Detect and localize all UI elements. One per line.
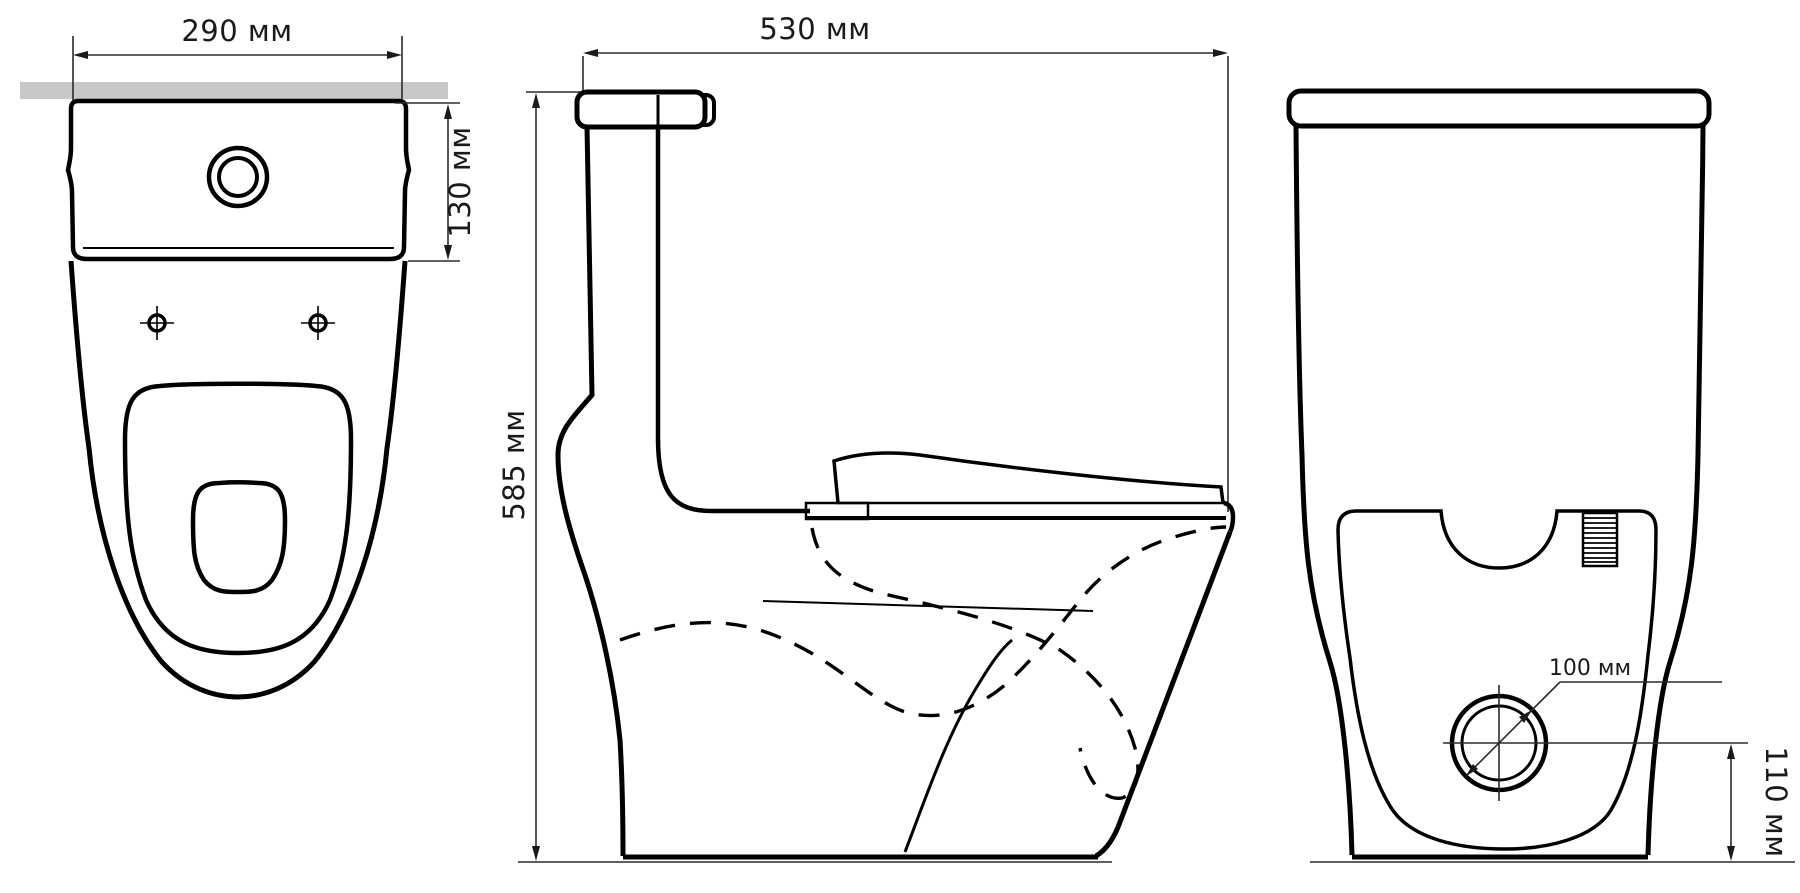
tank-front-face (658, 127, 810, 511)
body-outline-front-right (1648, 126, 1703, 855)
arrow-up-icon (532, 93, 540, 108)
dim-outlet-diameter-label: 100 мм (1549, 656, 1631, 681)
arrow-down-icon (1727, 846, 1735, 861)
wall-bar (20, 82, 448, 99)
body-outline-front-left (1296, 126, 1352, 855)
arrow-left-icon (583, 49, 598, 57)
bowl-outline-top (71, 261, 405, 697)
trapway-dashed-lower (620, 527, 1226, 716)
dim-side-height-label: 585 мм (497, 409, 531, 520)
arrow-down-icon (532, 846, 540, 861)
water-area-outline (193, 482, 285, 592)
outlet-centerlines (1443, 682, 1748, 801)
flush-button-inner (219, 158, 257, 196)
dim-top-width-label: 290 мм (181, 14, 292, 48)
dim-outlet-height-label: 110 мм (1759, 746, 1793, 857)
mount-hole-right (301, 306, 335, 340)
front-view (1289, 91, 1795, 862)
dim-side-depth-label: 530 мм (759, 12, 870, 46)
tank-outline-top (68, 101, 409, 259)
trapway-dashed-upper (812, 528, 1138, 798)
top-view (20, 36, 460, 697)
arrow-down-icon (444, 245, 452, 260)
drawing-canvas: 290 мм 130 мм 530 мм 585 мм 100 мм 110 м… (0, 0, 1800, 893)
toilet-dimension-drawing: 290 мм 130 мм 530 мм 585 мм 100 мм 110 м… (0, 0, 1800, 893)
dim-tank-depth-label: 130 мм (443, 126, 477, 237)
arrow-up-icon (1727, 744, 1735, 759)
arrow-right-icon (1213, 49, 1228, 57)
tank-rear-and-base-rear (558, 127, 623, 856)
side-view (518, 49, 1233, 862)
bowl-front-slope (1096, 532, 1230, 856)
seat-lid-wedge (834, 453, 1223, 503)
inlet-nozzle (1583, 513, 1617, 566)
mount-hole-left (140, 306, 174, 340)
seat-opening-outline (125, 384, 351, 653)
arrow-left-icon (73, 51, 88, 59)
tank-lid-front (1289, 91, 1709, 126)
arrow-right-icon (387, 51, 402, 59)
tank-lid-side (577, 92, 705, 127)
arrow-up-icon (444, 104, 452, 119)
pedestal-front-crease (905, 640, 1012, 852)
